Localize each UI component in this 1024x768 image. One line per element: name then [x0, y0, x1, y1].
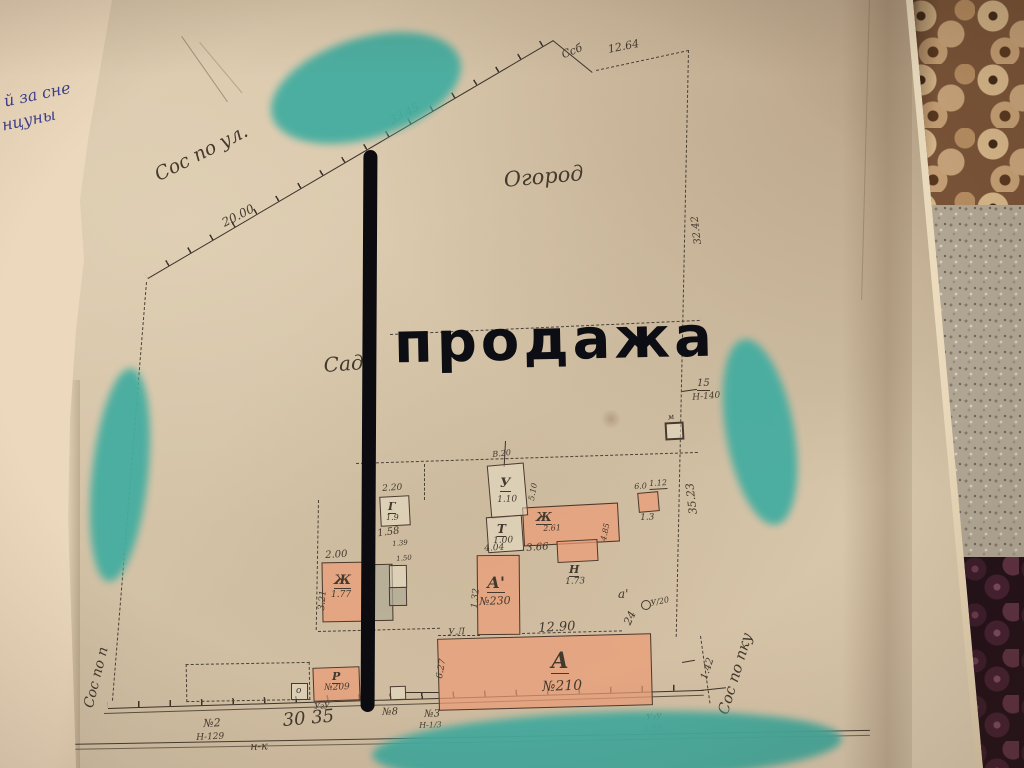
meas-1-00: 1.00	[493, 536, 513, 546]
building-a2-letter: А'	[487, 575, 505, 593]
label-no2: №2	[203, 717, 221, 729]
label-no8: №8	[382, 707, 398, 718]
gate-line	[405, 692, 439, 693]
meas-2-00: 2.00	[325, 550, 348, 561]
meas-1-39: 1.39	[392, 540, 408, 548]
shed-dashed-vertical	[424, 464, 425, 500]
meas-1-32: 1.32	[471, 588, 482, 609]
meas-12-90: 12.90	[538, 620, 576, 635]
building-n-letter: Н	[569, 564, 579, 577]
meas-n-129: Н-129	[196, 733, 225, 743]
building-r-number: №209	[324, 683, 350, 693]
black-divider-line	[361, 150, 378, 712]
photo-of-plot-plan: Сос по ул. 20.00 33.45 Ссб 12.64 Огород …	[0, 0, 1024, 768]
label-m: м	[667, 413, 675, 422]
plot-no2-dashed-rect	[186, 662, 311, 702]
meas-1-12: 1.12	[649, 479, 667, 490]
building-zh2-letter: Ж	[334, 574, 351, 589]
building-a-number: №210	[542, 679, 582, 694]
annex-n	[556, 539, 598, 563]
label-no3: №3	[424, 709, 440, 720]
meas-1-77: 1.77	[331, 591, 351, 600]
building-a-letter: А	[551, 650, 569, 674]
meas-1-3: 1.3	[640, 513, 655, 522]
building-house-a-210	[437, 633, 653, 711]
label-ugu-1: УгУ	[314, 702, 330, 711]
label-n-k: н-к	[250, 740, 268, 752]
meas-15: 15	[697, 379, 710, 391]
meas-2-61: 2.61	[543, 524, 561, 533]
outbuilding-east	[637, 491, 660, 513]
building-a2-number: №230	[479, 595, 511, 607]
gate-post-square	[390, 686, 406, 701]
meas-6-0: 6.0	[634, 482, 647, 491]
boundary-structure-m	[665, 422, 685, 441]
meas-30-35: 30 35	[282, 708, 335, 730]
annex-small-2	[389, 587, 407, 606]
label-sad-orchard: Сад	[323, 352, 364, 375]
point-a-prime: а'	[618, 588, 628, 600]
label-u-l: У.Л	[448, 628, 465, 638]
annex-small-1	[389, 565, 407, 588]
meas-35-23: 35.23	[684, 482, 699, 515]
meas-1-10: 1.10	[497, 495, 517, 505]
meas-1-50: 1.50	[396, 555, 412, 563]
meas-2-20: 2.20	[382, 484, 403, 494]
meas-3-21: 3.21	[318, 590, 329, 611]
building-u-letter: У	[500, 477, 511, 492]
sale-annotation-text: продажа	[393, 305, 716, 377]
well-letter: о	[296, 687, 301, 696]
meas-1-9: 1.9	[386, 514, 399, 522]
meas-1-73: 1.73	[565, 577, 585, 587]
meas-3-66: 3.66	[526, 542, 549, 554]
paper-stain	[600, 410, 622, 428]
